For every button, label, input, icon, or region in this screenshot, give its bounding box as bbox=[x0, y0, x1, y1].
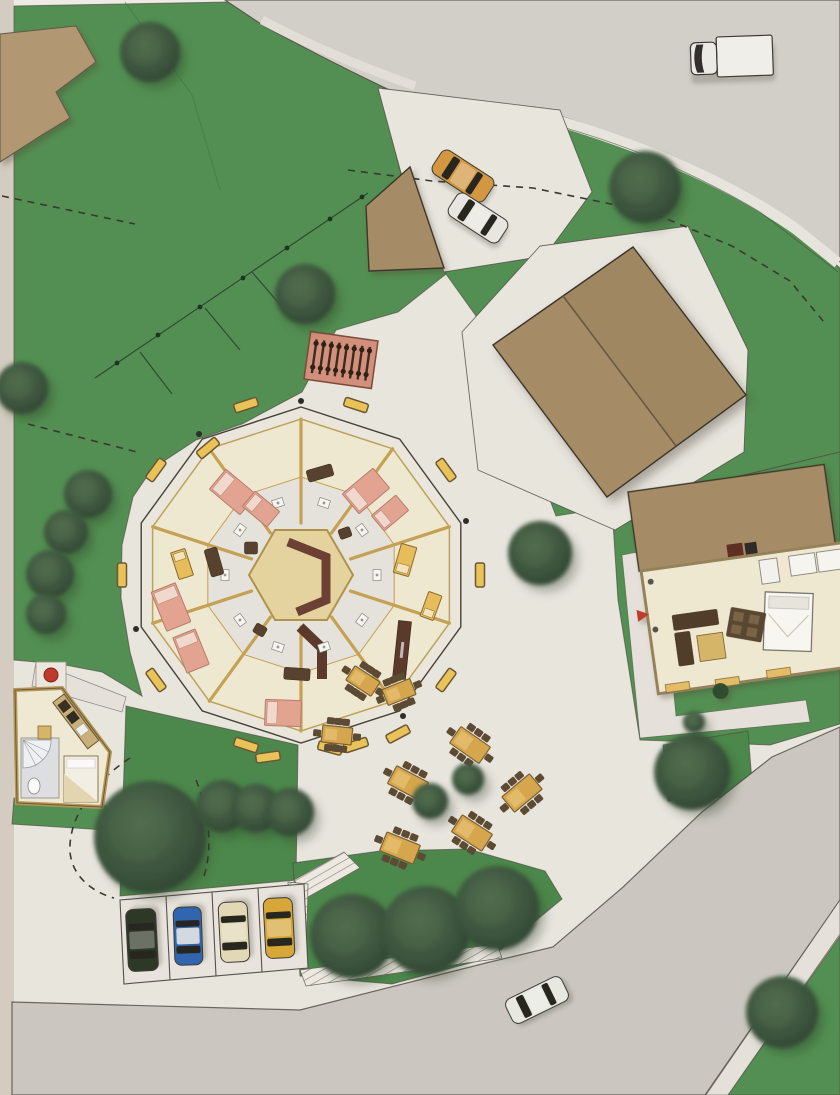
photo-tint-overlay bbox=[0, 0, 840, 1095]
site-plan-drawing bbox=[0, 0, 840, 1095]
site-plan-photo bbox=[0, 0, 840, 1095]
